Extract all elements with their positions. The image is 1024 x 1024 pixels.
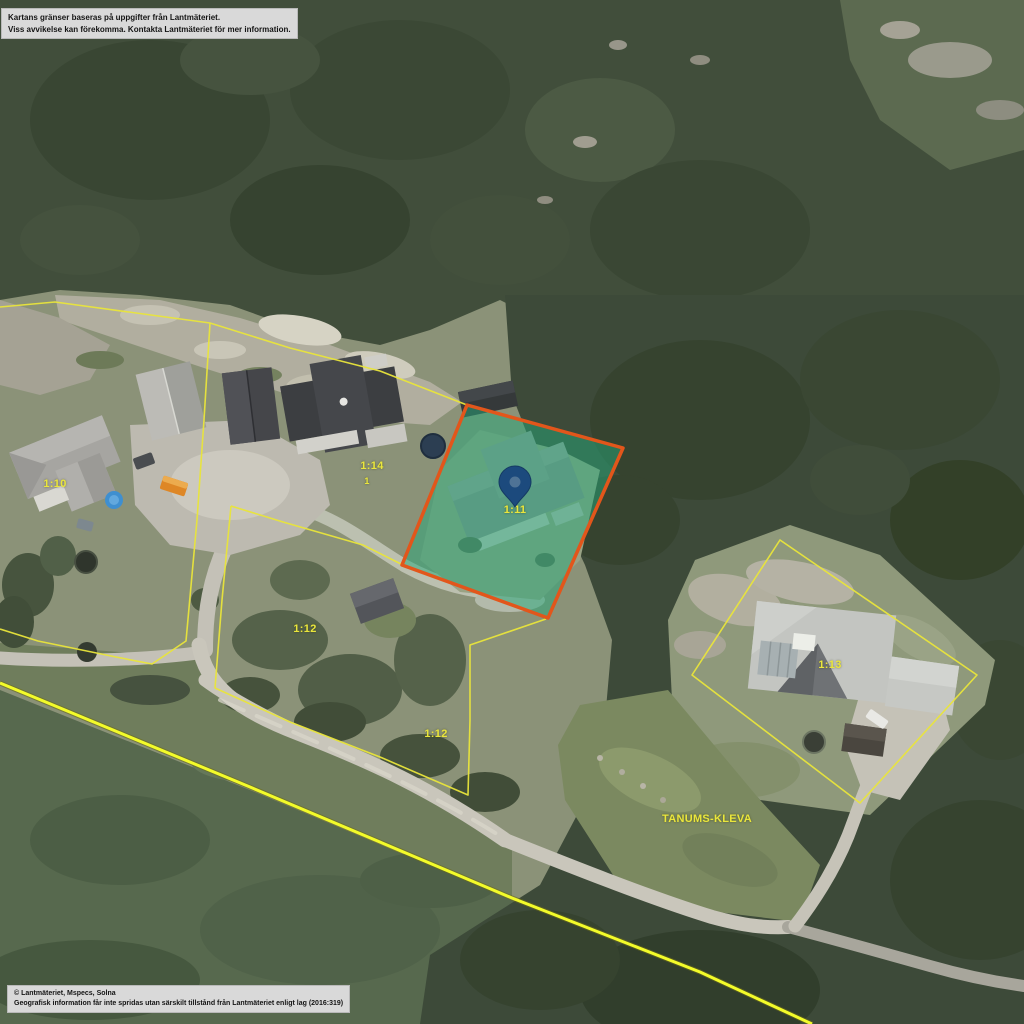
disclaimer-line2: Viss avvikelse kan förekomma. Kontakta L…	[8, 24, 291, 36]
map-canvas[interactable]: 1:101:1411:111:121:121:13TANUMS-KLEVA Ka…	[0, 0, 1024, 1024]
disclaimer-line1: Kartans gränser baseras på uppgifter frå…	[8, 12, 291, 24]
map-disclaimer: Kartans gränser baseras på uppgifter frå…	[2, 9, 297, 38]
copyright-line1: © Lantmäteriet, Mspecs, Solna	[14, 989, 343, 999]
map-copyright: © Lantmäteriet, Mspecs, Solna Geografisk…	[8, 986, 349, 1012]
map-pin[interactable]	[499, 466, 531, 507]
pin-inner-dot	[510, 477, 521, 488]
pin-layer	[0, 0, 1024, 1024]
copyright-line2: Geografisk information får inte spridas …	[14, 999, 343, 1009]
